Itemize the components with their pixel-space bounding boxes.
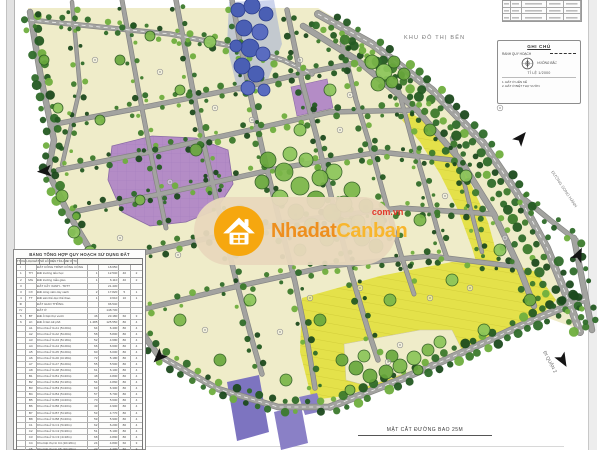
legend-title: GHI CHÚ [502,43,576,50]
table-header-cell: DIỆN TÍCH [50,259,65,264]
summary-table-fragment [502,0,582,22]
road-label-right: ĐƯỜNG SONG HÀNH [550,170,578,208]
house-logo-icon [214,206,264,256]
table-header-cell: MĐ % [65,259,74,264]
nhadatcanban-watermark: com.vn NhadatCanban [194,197,396,265]
legend-note: 2. ĐẤT Ở BIỆT THỰ VƯỜN [502,84,576,89]
watermark-brand: NhadatCanban [271,220,407,242]
public-block-south [274,405,308,450]
watermark-domain: com.vn [372,207,404,217]
landuse-statistics-table: BẢNG TỔNG HỢP QUY HOẠCH SỬ DỤNG ĐẤT TTKH… [13,249,146,450]
table-header-cell: TC [73,259,78,264]
table-body: I ĐẤT CÔNG TRÌNH CÔNG CỘNG 18.650 1 TH Đ… [17,265,142,450]
district-label: KHU ĐÔ THỊ BẾN [404,34,465,41]
legend-scale: TỈ LỆ 1/2000 [502,71,576,75]
boundary-line-symbol [550,53,576,54]
road-label-bottom: ĐI QUẬN 2 [541,350,559,375]
legend-notes: 1. ĐẤT Ở LIÊN KẾ2. ĐẤT Ở BIỆT THỰ VƯỜN [502,77,576,89]
table-header-cell: LOẠI ĐẤT [26,259,40,264]
legend-row1-label: RANH QUY HOẠCH [502,52,531,56]
legend-row2-label: HƯỚNG BẮC [537,61,557,65]
road-section-caption: MẶT CẮT ĐƯỜNG BAO 25M [358,427,492,436]
master-plan-scan: KHU ĐÔ THỊ BẾN ĐƯỜNG SONG HÀNH ĐI QUẬN 2… [0,0,600,450]
compass-icon [521,57,534,70]
table-title: BẢNG TỔNG HỢP QUY HOẠCH SỬ DỤNG ĐẤT [16,252,143,258]
table-header-cell: SỐ LÔ [40,259,50,264]
legend-box: GHI CHÚ RANH QUY HOẠCH HƯỚNG BẮC TỈ LỆ 1… [497,40,581,104]
